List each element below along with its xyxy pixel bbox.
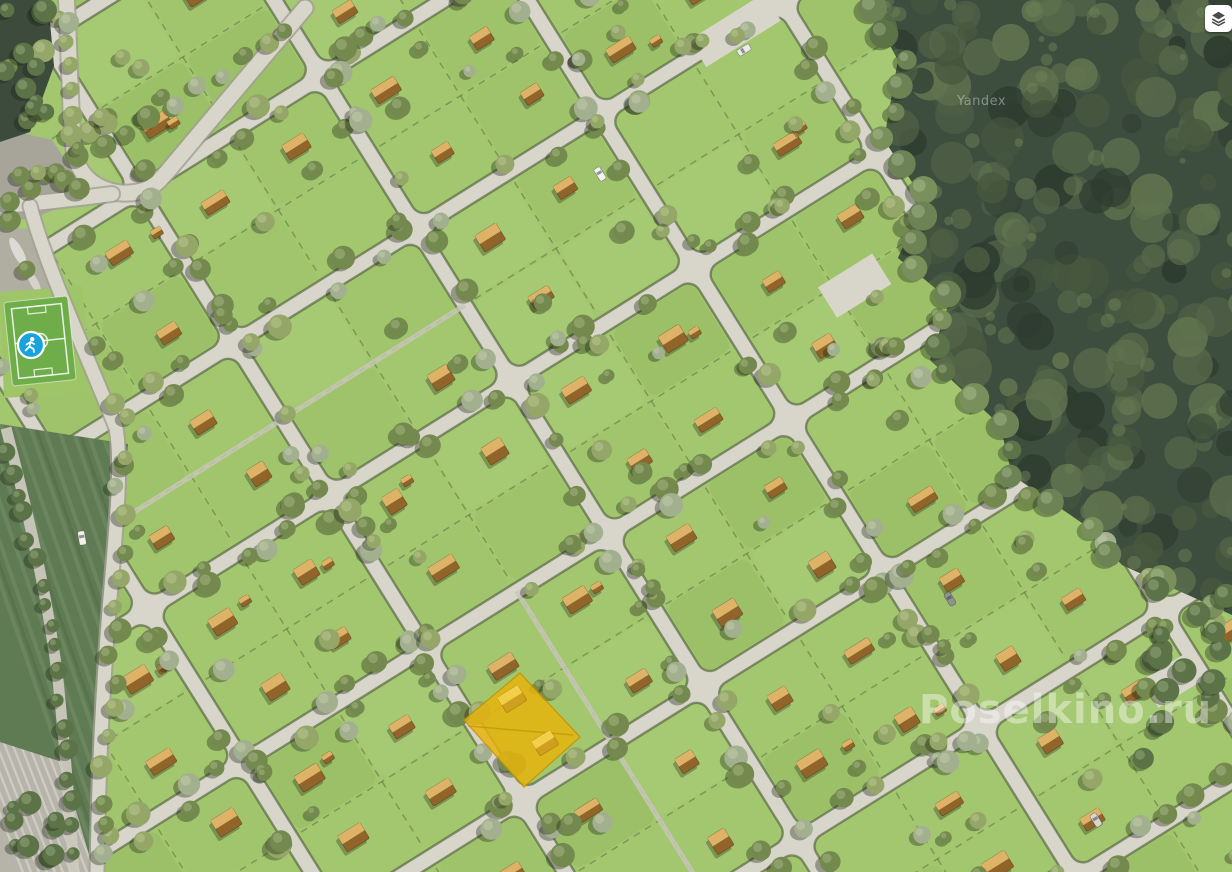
layers-icon [1210,10,1227,27]
yandex-watermark: Yandex [956,94,1006,109]
runner-icon [30,337,34,341]
terrain-layer [0,0,1232,872]
sports-ground-icon [18,332,44,358]
map-viewport[interactable]: Yandex Poselkino.ru [0,0,1232,872]
site-watermark: Poselkino.ru [919,687,1212,733]
settlement-map-canvas[interactable]: Yandex Poselkino.ru [0,0,1232,872]
map-layers-button[interactable] [1205,5,1232,32]
